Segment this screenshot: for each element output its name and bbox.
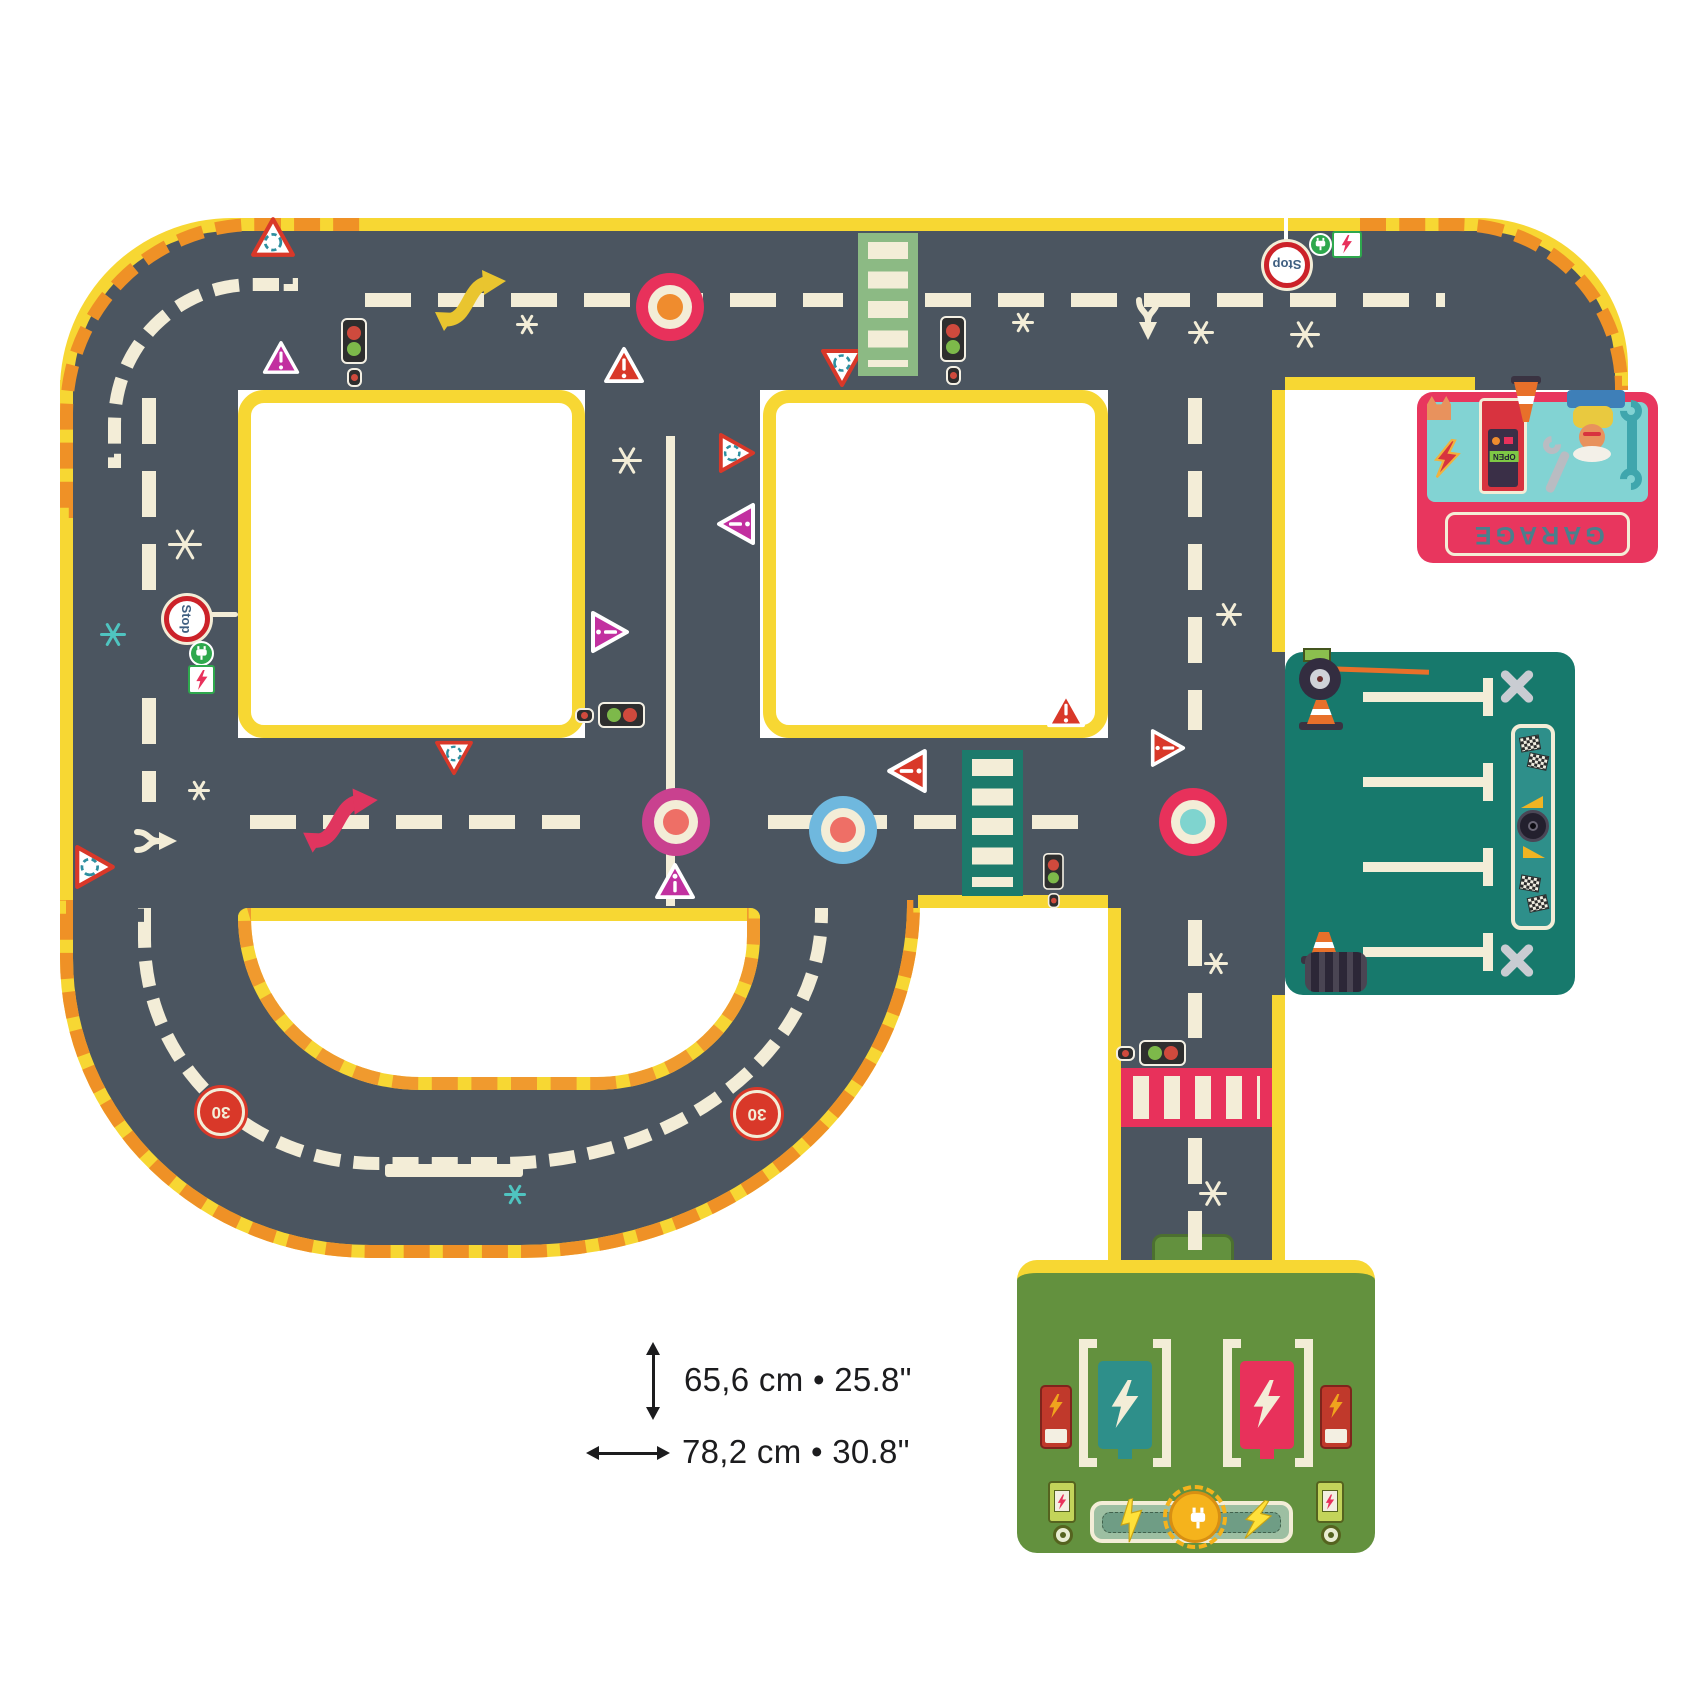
lightning-icon — [1325, 1494, 1335, 1510]
open-sign: OPEN — [1490, 451, 1519, 462]
puzzle-road-product-image: OPEN GARAGE 65,6 cm • 25.8" — [0, 0, 1700, 1700]
pump-screen — [1322, 1490, 1338, 1512]
speed-30-sign: 30 — [733, 1090, 781, 1138]
sparkle-star — [1216, 613, 1242, 616]
lane-solid-line — [208, 612, 238, 617]
lane-merge-arrow — [1128, 296, 1168, 342]
charging-station-piece — [1017, 1260, 1375, 1553]
width-dimension-label: 78,2 cm • 30.8" — [682, 1432, 910, 1472]
parking-bracket — [1153, 1339, 1171, 1467]
road-edge — [1285, 377, 1475, 390]
garage-piece: OPEN GARAGE — [1417, 392, 1658, 563]
speed-30-sign: 30 — [197, 1088, 245, 1136]
roundabout-marking — [809, 796, 877, 864]
socket-dot — [1060, 1532, 1066, 1538]
hub-dot — [1317, 676, 1323, 682]
traffic-light — [940, 316, 966, 386]
plug-socket-icon — [1053, 1525, 1073, 1545]
sparkle-star — [1199, 1192, 1227, 1195]
crossed-wrenches-icon — [1495, 938, 1539, 982]
lane-dashes — [1032, 815, 1098, 829]
plug-icon — [1185, 1505, 1211, 1531]
width-dimension-arrow — [586, 1446, 670, 1460]
traffic-light — [575, 702, 645, 728]
sparkle-star — [188, 789, 210, 792]
crosswalk — [1121, 1068, 1272, 1127]
wrench-head — [1615, 463, 1646, 494]
road-edge — [1272, 995, 1285, 1262]
cone-body — [1514, 382, 1538, 422]
parking-bracket — [1079, 1339, 1097, 1467]
traffic-sign-triangle — [716, 502, 756, 546]
wing-icon — [1521, 796, 1543, 808]
roundabout-marking — [1159, 788, 1227, 856]
small-pump — [1048, 1481, 1076, 1523]
traffic-sign-triangle — [250, 216, 296, 258]
lane-dashes — [1188, 398, 1202, 730]
garage-sign-plate: GARAGE — [1445, 512, 1630, 556]
racing-banner — [1511, 724, 1555, 930]
sparkle-star — [100, 633, 126, 636]
charge-arrow-icon — [1109, 1375, 1141, 1433]
height-dimension-arrow — [646, 1342, 660, 1420]
ev-charge-sign — [1309, 233, 1332, 256]
parking-line-cap — [1483, 933, 1493, 971]
parking-line-cap — [1483, 763, 1493, 801]
road-edge — [918, 895, 1108, 908]
socket-dot — [1328, 1532, 1334, 1538]
sparkle-star — [612, 459, 642, 462]
screen-dot — [1492, 437, 1500, 445]
lane-solid-line — [385, 1164, 523, 1177]
cat-icon — [1427, 396, 1451, 420]
traffic-cone-icon — [1299, 700, 1343, 730]
ev-station-sign — [1332, 231, 1362, 258]
stop-sign: Stop — [1264, 242, 1310, 288]
screen-chip — [1504, 437, 1513, 444]
road-edge — [1272, 390, 1285, 652]
roundabout-marking — [636, 273, 704, 341]
parking-line — [1363, 947, 1483, 957]
s-curve-arrow-marking — [432, 268, 510, 332]
pump-panel — [1045, 1429, 1067, 1443]
wrench-handle — [1544, 450, 1570, 494]
tire-hub — [1310, 669, 1330, 689]
traffic-sign-triangle — [718, 432, 756, 474]
tire-icon — [1299, 658, 1341, 700]
cabinet-screen: OPEN — [1488, 429, 1518, 487]
sparkle-star — [1204, 962, 1228, 965]
sign-pole — [1284, 218, 1288, 244]
wing-icon — [1523, 846, 1545, 858]
sparkle-star — [1188, 331, 1214, 334]
plug-socket-icon — [1321, 1525, 1341, 1545]
stop-sign: Stop — [164, 596, 210, 642]
traffic-sign-triangle — [654, 862, 696, 900]
rolled-mats — [1305, 952, 1367, 992]
gear-plug-icon — [1169, 1491, 1221, 1543]
traffic-sign-triangle — [1150, 728, 1186, 768]
crosswalk — [962, 750, 1023, 896]
ev-station-sign — [188, 665, 215, 694]
parking-line — [1363, 777, 1483, 787]
wrench-icon-large — [1619, 400, 1645, 492]
parking-line-cap — [1483, 678, 1493, 716]
roundabout-marking — [642, 788, 710, 856]
lane-dashes — [142, 698, 156, 802]
lane-dashes — [1188, 920, 1202, 1038]
charging-pump — [1320, 1385, 1352, 1449]
parking-line — [1363, 692, 1483, 702]
lane-merge-arrow — [133, 821, 179, 861]
lightning-icon — [1048, 1393, 1064, 1419]
lightning-icon — [1328, 1393, 1344, 1419]
checkered-flag-icon — [1527, 752, 1550, 771]
traffic-sign-triangle — [886, 748, 928, 794]
charging-bay-teal — [1098, 1361, 1152, 1449]
wrench-icon — [1539, 436, 1579, 496]
pump-panel — [1325, 1429, 1347, 1443]
parking-line-cap — [1483, 848, 1493, 886]
orange-rod — [1329, 666, 1429, 674]
puzzle-hole-right — [763, 390, 1108, 738]
lightning-icon — [1057, 1494, 1067, 1510]
sparkle-star — [516, 323, 538, 326]
bay-stub — [1260, 1449, 1274, 1459]
charging-pump — [1040, 1385, 1072, 1449]
checkered-flag-icon — [1527, 894, 1550, 913]
puzzle-hole-left — [238, 390, 585, 738]
pump-screen — [1054, 1490, 1070, 1512]
charging-bay-pink — [1240, 1361, 1294, 1449]
wrench-handle — [1627, 418, 1637, 472]
height-dimension-label: 65,6 cm • 25.8" — [684, 1360, 912, 1400]
parking-bracket — [1223, 1339, 1241, 1467]
traffic-sign-triangle — [590, 610, 630, 654]
traffic-light — [341, 318, 367, 388]
road-edge — [1108, 908, 1121, 1262]
sparkle-star — [1290, 333, 1320, 336]
mechanic-goggles — [1583, 432, 1601, 436]
traffic-sign-triangle — [74, 844, 116, 890]
s-curve-arrow-marking — [300, 786, 382, 854]
sparkle-star — [504, 1193, 526, 1196]
charge-arrow-icon — [1251, 1375, 1283, 1433]
sparkle-star — [168, 543, 202, 546]
parking-line — [1363, 862, 1483, 872]
traffic-light — [1116, 1040, 1186, 1066]
lane-dashes — [925, 293, 1445, 307]
small-pump — [1316, 1481, 1344, 1523]
traffic-cone-icon — [1509, 376, 1543, 422]
checkered-flag-icon — [1519, 734, 1541, 752]
ev-charge-sign — [189, 641, 214, 666]
bay-stub — [1118, 1449, 1132, 1459]
mechanic-hair — [1573, 446, 1611, 462]
garage-sign-text: GARAGE — [1471, 520, 1605, 549]
tire-icon — [1517, 810, 1549, 842]
traffic-sign-triangle — [603, 346, 645, 384]
sparkle-star — [1012, 321, 1034, 324]
traffic-light — [1043, 853, 1064, 909]
traffic-sign-triangle — [1046, 692, 1086, 728]
tire-hub — [1528, 821, 1538, 831]
traffic-sign-triangle — [434, 740, 474, 776]
checkered-flag-icon — [1519, 874, 1541, 892]
cone-body — [1307, 700, 1335, 724]
crosswalk — [858, 233, 918, 376]
lane-dashes — [142, 398, 156, 590]
parking-bracket — [1295, 1339, 1313, 1467]
crossed-wrenches-icon — [1495, 664, 1539, 708]
traffic-sign-triangle — [262, 340, 300, 375]
pit-stop-parking-piece — [1285, 652, 1575, 995]
